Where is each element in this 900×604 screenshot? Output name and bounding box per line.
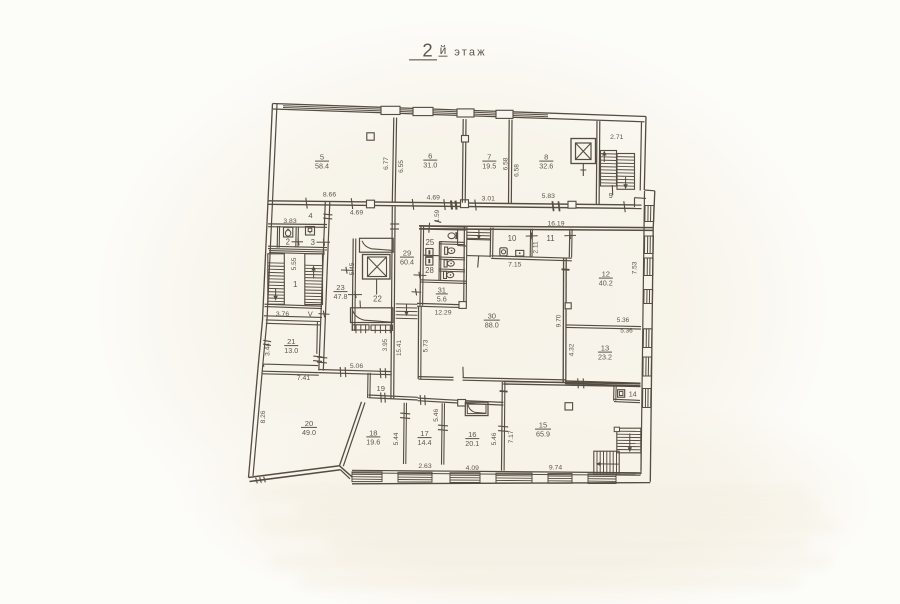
svg-text:6.58: 6.58 [514, 164, 521, 177]
svg-text:13: 13 [601, 344, 609, 353]
svg-text:31.0: 31.0 [423, 161, 437, 170]
svg-text:19.6: 19.6 [366, 438, 380, 447]
svg-text:5.73: 5.73 [423, 339, 430, 352]
svg-text:20.1: 20.1 [465, 439, 479, 448]
svg-text:7.41: 7.41 [297, 375, 310, 382]
svg-text:8: 8 [544, 153, 548, 162]
svg-text:16: 16 [468, 430, 476, 439]
svg-text:32.6: 32.6 [539, 162, 553, 171]
svg-text:7.15: 7.15 [508, 262, 521, 269]
svg-text:23.2: 23.2 [598, 353, 612, 362]
svg-text:47.8: 47.8 [334, 292, 348, 301]
svg-text:31: 31 [438, 285, 446, 294]
svg-text:3.76: 3.76 [276, 311, 289, 318]
svg-text:6.58: 6.58 [503, 157, 510, 170]
svg-text:11: 11 [547, 234, 555, 243]
svg-text:5.06: 5.06 [350, 363, 363, 370]
svg-text:21: 21 [287, 337, 295, 346]
svg-text:3.01: 3.01 [482, 196, 495, 203]
svg-text:5.36: 5.36 [617, 317, 630, 324]
svg-text:7.17: 7.17 [508, 430, 515, 443]
svg-text:25: 25 [426, 238, 435, 247]
svg-text:6: 6 [428, 152, 432, 161]
svg-text:7: 7 [487, 153, 491, 162]
svg-text:9.70: 9.70 [556, 314, 563, 327]
svg-text:2: 2 [286, 238, 290, 247]
svg-text:3: 3 [311, 238, 315, 247]
svg-text:19: 19 [376, 384, 384, 393]
svg-text:22: 22 [373, 295, 382, 304]
svg-text:8.26: 8.26 [260, 410, 267, 423]
svg-text:15: 15 [539, 421, 547, 430]
svg-text:2.11: 2.11 [533, 241, 540, 254]
svg-text:5.6: 5.6 [437, 295, 447, 304]
svg-text:4.69: 4.69 [350, 210, 363, 217]
svg-text:13.0: 13.0 [284, 346, 298, 355]
svg-text:60.4: 60.4 [400, 258, 414, 267]
svg-text:2: 2 [422, 40, 432, 61]
svg-text:12: 12 [602, 270, 610, 279]
svg-text:4.69: 4.69 [427, 195, 440, 202]
svg-text:5.46: 5.46 [433, 409, 440, 422]
svg-text:14: 14 [629, 390, 637, 399]
svg-text:9.74: 9.74 [549, 465, 562, 472]
svg-text:23: 23 [336, 283, 344, 292]
svg-text:58.4: 58.4 [315, 162, 329, 171]
svg-text:3.83: 3.83 [283, 218, 296, 225]
svg-text:5.46: 5.46 [491, 432, 498, 445]
svg-text:2.63: 2.63 [418, 463, 431, 470]
svg-text:65.9: 65.9 [536, 430, 550, 439]
svg-text:5.83: 5.83 [542, 193, 555, 200]
svg-text:18: 18 [369, 428, 377, 437]
svg-text:2.71: 2.71 [610, 134, 623, 141]
svg-text:88.0: 88.0 [485, 321, 499, 330]
svg-text:5.45: 5.45 [349, 262, 356, 275]
svg-text:14.4: 14.4 [418, 438, 432, 447]
svg-text:12.29: 12.29 [434, 310, 451, 317]
svg-text:40.2: 40.2 [599, 279, 613, 288]
svg-text:16.19: 16.19 [547, 220, 564, 227]
svg-text:4.32: 4.32 [569, 343, 576, 356]
svg-text:1: 1 [293, 280, 298, 289]
svg-text:4.09: 4.09 [466, 465, 479, 472]
svg-text:19.5: 19.5 [482, 162, 496, 171]
svg-text:7.53: 7.53 [632, 261, 639, 274]
svg-text:10: 10 [508, 234, 517, 243]
svg-text:5: 5 [320, 153, 324, 162]
svg-text:5.36: 5.36 [620, 328, 633, 335]
svg-text:30: 30 [488, 312, 496, 321]
svg-text:49.0: 49.0 [302, 428, 316, 437]
svg-text:17: 17 [420, 429, 428, 438]
svg-text:8.66: 8.66 [323, 192, 336, 199]
svg-text:3.95: 3.95 [382, 338, 389, 351]
svg-text:15.41: 15.41 [396, 340, 403, 356]
svg-text:9: 9 [609, 191, 613, 200]
svg-text:20: 20 [305, 419, 313, 428]
svg-text:4: 4 [308, 211, 312, 220]
svg-text:6.77: 6.77 [383, 157, 390, 170]
svg-text:28: 28 [425, 266, 434, 275]
svg-text:6.55: 6.55 [398, 160, 405, 173]
svg-text:29: 29 [403, 249, 411, 258]
svg-text:5.55: 5.55 [291, 257, 298, 270]
svg-text:этаж: этаж [454, 47, 487, 59]
svg-text:5.44: 5.44 [393, 432, 400, 445]
svg-text:й: й [440, 43, 447, 57]
